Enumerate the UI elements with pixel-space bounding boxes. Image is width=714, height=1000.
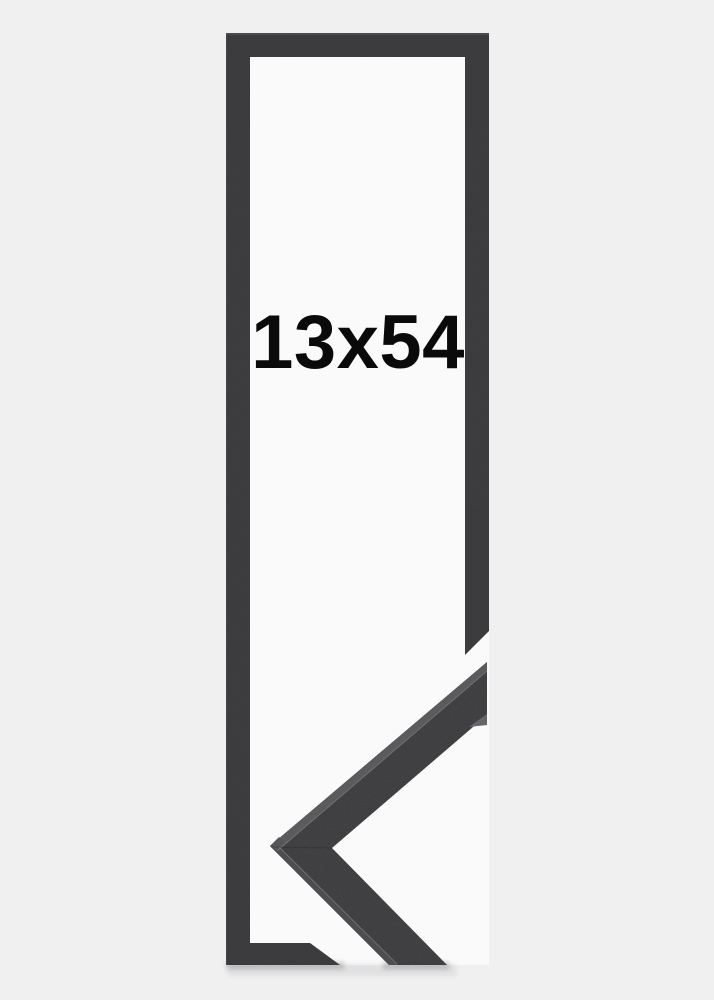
frame-illustration (0, 0, 714, 1000)
size-label: 13x54 (251, 305, 465, 381)
frame-inner-mat (250, 57, 489, 965)
product-photo: 13x54 (0, 0, 714, 1000)
